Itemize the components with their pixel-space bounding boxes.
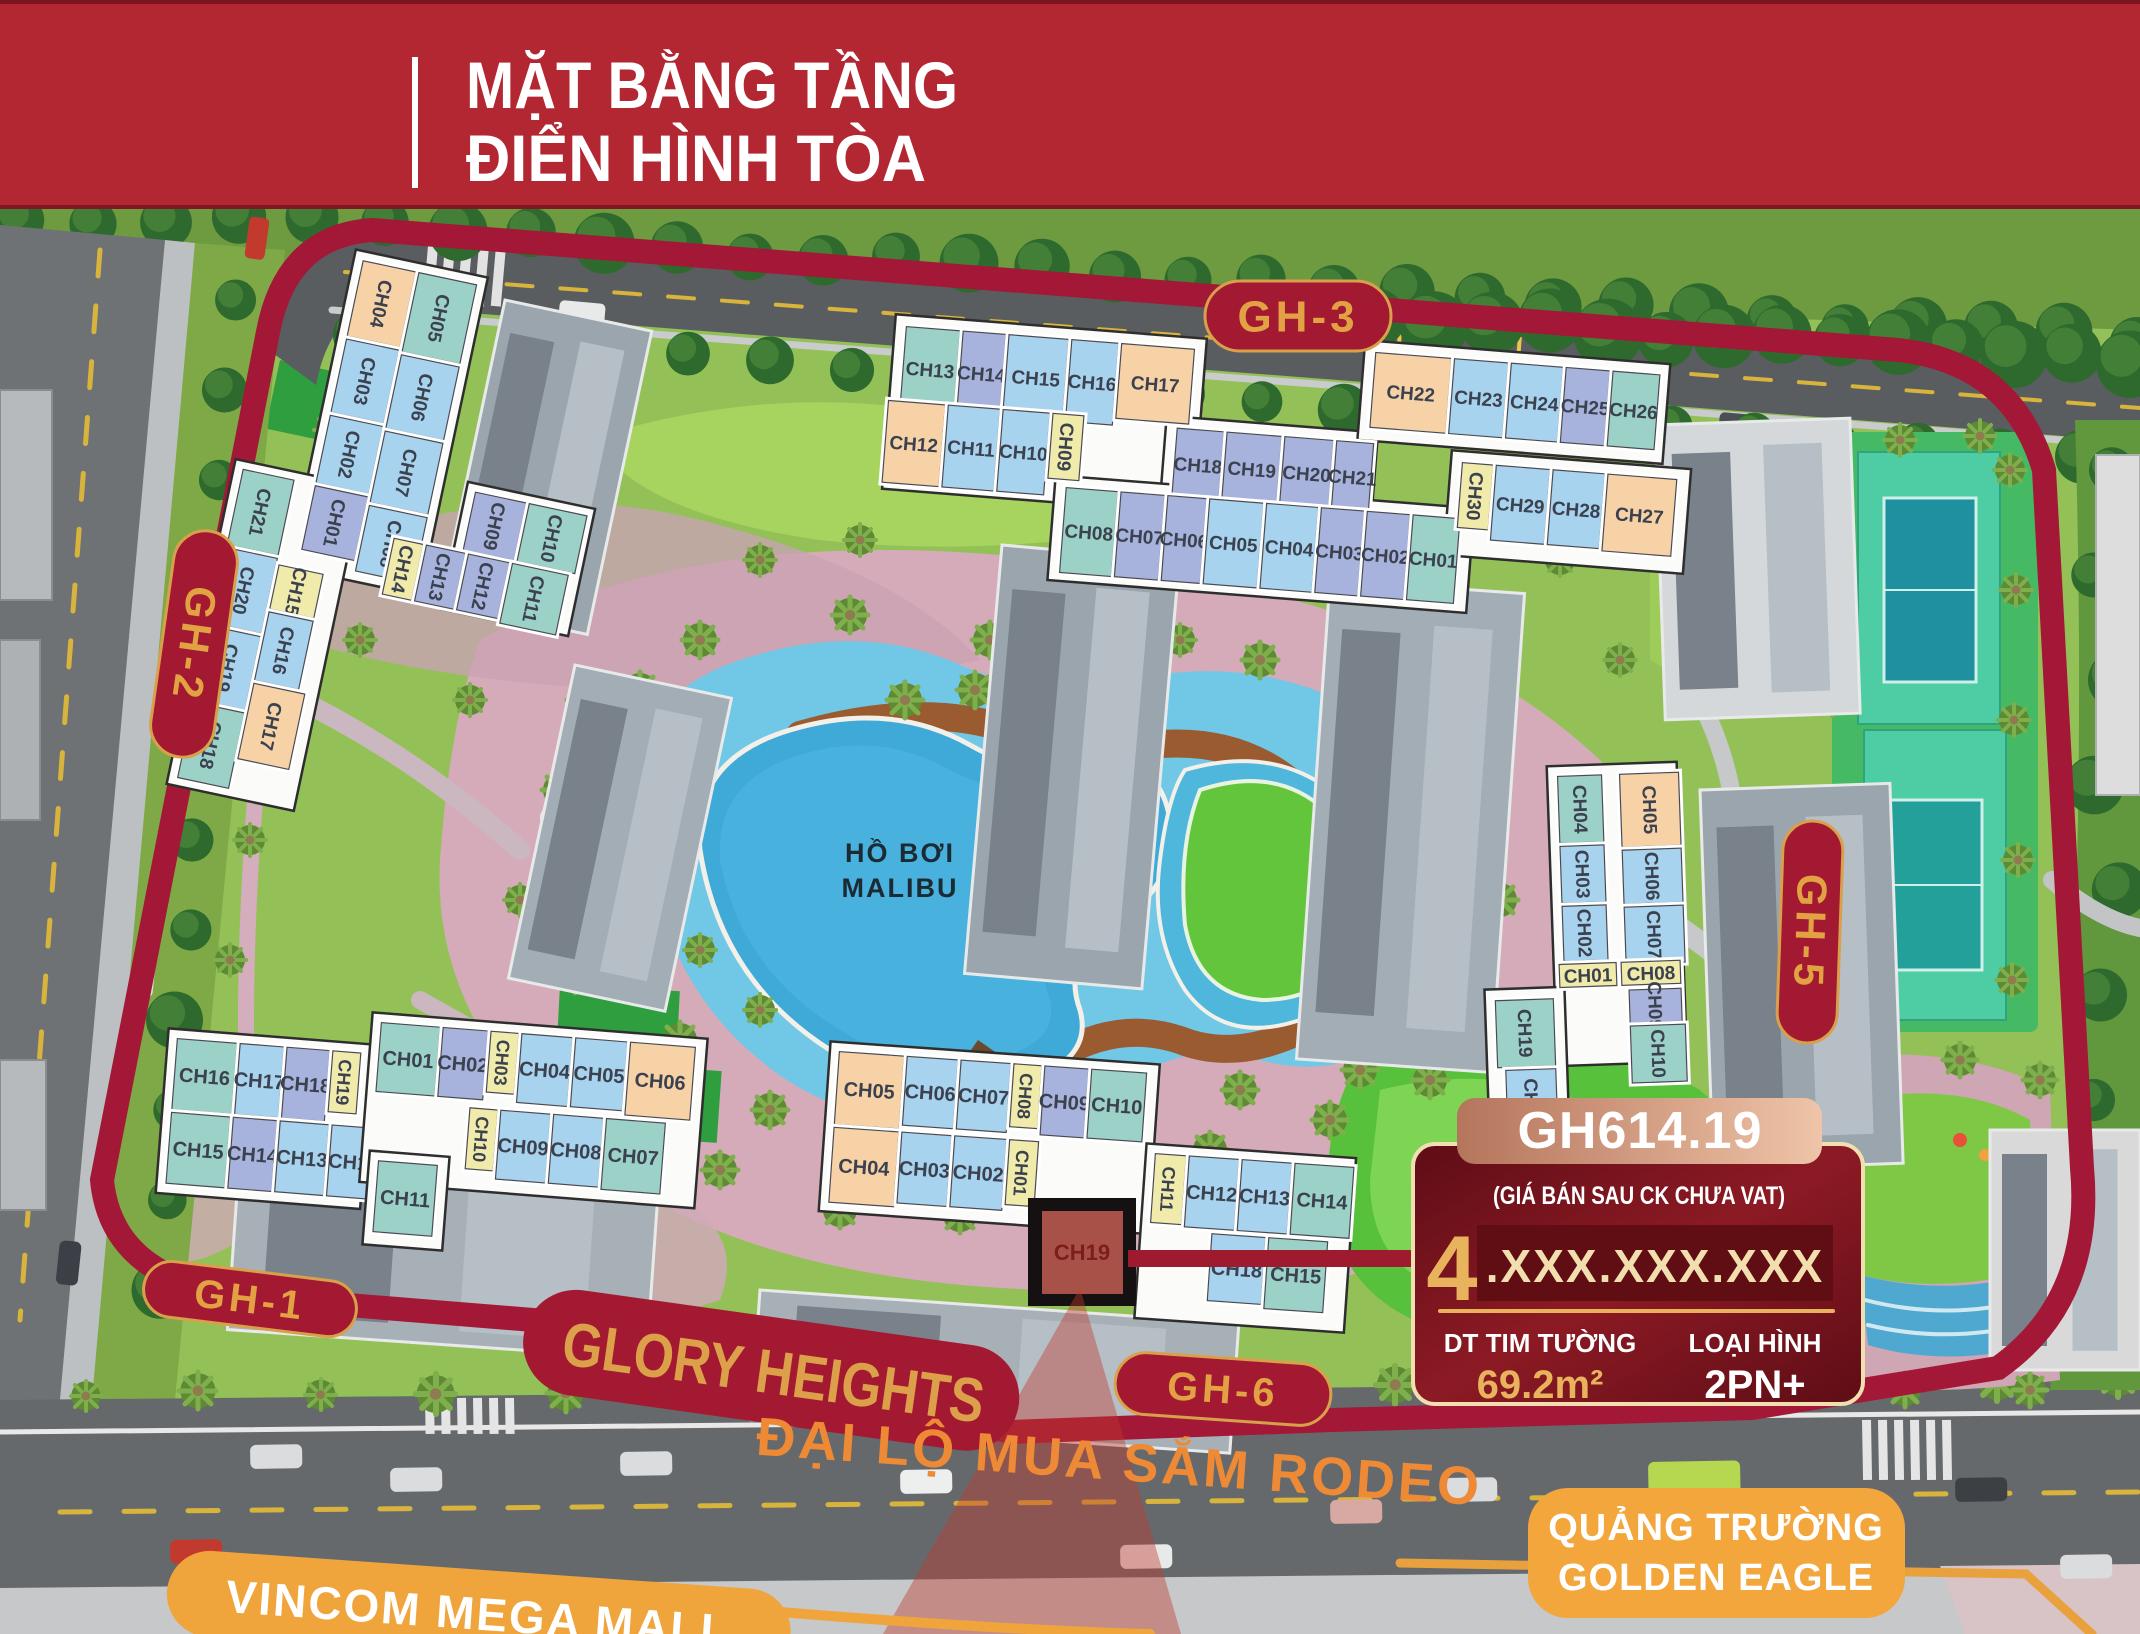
svg-text:LOẠI HÌNH: LOẠI HÌNH — [1689, 1328, 1822, 1358]
svg-text:CH17: CH17 — [233, 1069, 286, 1095]
svg-text:2PN+: 2PN+ — [1704, 1363, 1805, 1407]
svg-text:CH19: CH19 — [1054, 1240, 1110, 1265]
svg-text:CH06: CH06 — [904, 1081, 957, 1107]
svg-text:CH29: CH29 — [1495, 494, 1545, 519]
svg-text:GOLDEN EAGLE: GOLDEN EAGLE — [1558, 1557, 1874, 1599]
svg-text:CH05: CH05 — [1637, 785, 1660, 835]
svg-text:MẶT BẰNG TẦNG: MẶT BẰNG TẦNG — [466, 48, 958, 122]
svg-text:(GIÁ BÁN SAU CK CHƯA VAT): (GIÁ BÁN SAU CK CHƯA VAT) — [1493, 1181, 1785, 1210]
svg-text:CH03: CH03 — [1570, 850, 1593, 899]
svg-text:CH16: CH16 — [1067, 371, 1117, 396]
svg-text:CH01: CH01 — [1408, 548, 1459, 573]
svg-text:MALIBU: MALIBU — [842, 873, 959, 903]
svg-text:CH18: CH18 — [279, 1072, 332, 1098]
svg-text:CH07: CH07 — [1115, 525, 1165, 550]
svg-text:CH07: CH07 — [1642, 910, 1665, 959]
svg-text:CH09: CH09 — [1038, 1090, 1091, 1116]
svg-text:QUẢNG TRƯỜNG: QUẢNG TRƯỜNG — [1548, 1505, 1884, 1549]
svg-text:CH05: CH05 — [843, 1079, 896, 1105]
svg-text:CH10: CH10 — [1090, 1094, 1143, 1120]
svg-text:CH05: CH05 — [573, 1062, 626, 1088]
svg-text:GH614.19: GH614.19 — [1517, 1102, 1762, 1160]
svg-text:CH08: CH08 — [1013, 1072, 1036, 1119]
svg-text:CH08: CH08 — [1064, 521, 1114, 546]
svg-text:.XXX.XXX.XXX: .XXX.XXX.XXX — [1486, 1240, 1824, 1292]
svg-text:CH13: CH13 — [1238, 1185, 1291, 1211]
svg-text:CH09: CH09 — [1052, 422, 1077, 472]
svg-text:CH19: CH19 — [1227, 458, 1277, 483]
svg-text:CH03: CH03 — [1314, 541, 1364, 566]
svg-text:CH04: CH04 — [1568, 785, 1591, 835]
svg-text:CH01: CH01 — [382, 1047, 435, 1073]
svg-text:CH17: CH17 — [1130, 373, 1180, 398]
svg-text:CH19: CH19 — [332, 1059, 356, 1106]
svg-text:4: 4 — [1426, 1218, 1477, 1320]
svg-text:CH09: CH09 — [497, 1135, 550, 1161]
svg-text:CH10: CH10 — [998, 441, 1048, 466]
svg-text:GH-5: GH-5 — [1785, 873, 1836, 991]
svg-text:GH-3: GH-3 — [1237, 292, 1358, 341]
svg-text:CH15: CH15 — [1269, 1263, 1322, 1289]
svg-text:CH02: CH02 — [1360, 545, 1410, 570]
svg-text:CH02: CH02 — [436, 1052, 489, 1078]
svg-text:CH14: CH14 — [956, 363, 1007, 388]
svg-text:CH01: CH01 — [1563, 965, 1613, 988]
svg-text:CH30: CH30 — [1461, 471, 1486, 521]
svg-text:69.2m²: 69.2m² — [1477, 1363, 1604, 1407]
svg-text:CH11: CH11 — [379, 1187, 431, 1213]
svg-text:CH06: CH06 — [1640, 852, 1663, 901]
svg-text:CH04: CH04 — [1264, 537, 1315, 562]
svg-text:CH24: CH24 — [1509, 392, 1560, 417]
svg-text:CH01: CH01 — [1009, 1149, 1032, 1196]
svg-text:DT TIM TƯỜNG: DT TIM TƯỜNG — [1444, 1328, 1637, 1358]
svg-text:CH15: CH15 — [1011, 367, 1062, 392]
svg-text:CH05: CH05 — [1208, 533, 1259, 558]
svg-text:CH26: CH26 — [1608, 400, 1658, 425]
svg-text:CH18: CH18 — [1173, 454, 1223, 479]
svg-text:CH19: CH19 — [1513, 1009, 1536, 1058]
svg-text:CH06: CH06 — [634, 1069, 687, 1095]
svg-text:CH06: CH06 — [1159, 529, 1209, 554]
svg-text:CH12: CH12 — [1185, 1181, 1238, 1207]
svg-text:CH27: CH27 — [1614, 504, 1664, 529]
svg-text:CH08: CH08 — [549, 1139, 602, 1165]
svg-text:CH25: CH25 — [1560, 396, 1611, 421]
svg-text:CH16: CH16 — [178, 1064, 231, 1090]
svg-text:GH-6: GH-6 — [1166, 1364, 1280, 1416]
svg-text:ĐIỂN HÌNH TÒA: ĐIỂN HÌNH TÒA — [466, 121, 926, 195]
svg-text:CH22: CH22 — [1386, 382, 1436, 407]
svg-text:CH04: CH04 — [518, 1058, 572, 1084]
svg-text:CH03: CH03 — [898, 1158, 951, 1184]
svg-text:CH12: CH12 — [889, 433, 939, 458]
svg-text:CH07: CH07 — [607, 1144, 660, 1170]
svg-text:CH14: CH14 — [1296, 1189, 1349, 1215]
svg-text:CH03: CH03 — [490, 1039, 514, 1086]
svg-text:CH02: CH02 — [1572, 908, 1595, 957]
svg-text:CH13: CH13 — [905, 359, 955, 384]
svg-text:CH21: CH21 — [1327, 466, 1378, 491]
svg-text:CH10: CH10 — [469, 1116, 493, 1163]
svg-text:CH10: CH10 — [1646, 1029, 1669, 1078]
svg-text:CH13: CH13 — [275, 1146, 328, 1172]
svg-text:HỒ BƠI: HỒ BƠI — [845, 837, 955, 868]
svg-text:CH20: CH20 — [1281, 463, 1331, 488]
svg-text:CH04: CH04 — [838, 1155, 891, 1181]
svg-text:CH14: CH14 — [226, 1142, 280, 1168]
svg-text:CH07: CH07 — [957, 1085, 1010, 1111]
svg-text:CH02: CH02 — [952, 1161, 1005, 1187]
svg-text:CH23: CH23 — [1453, 387, 1503, 412]
svg-text:CH11: CH11 — [946, 437, 995, 462]
svg-text:CH11: CH11 — [1156, 1166, 1179, 1212]
svg-text:CH15: CH15 — [172, 1138, 225, 1164]
svg-text:CH28: CH28 — [1551, 498, 1601, 523]
